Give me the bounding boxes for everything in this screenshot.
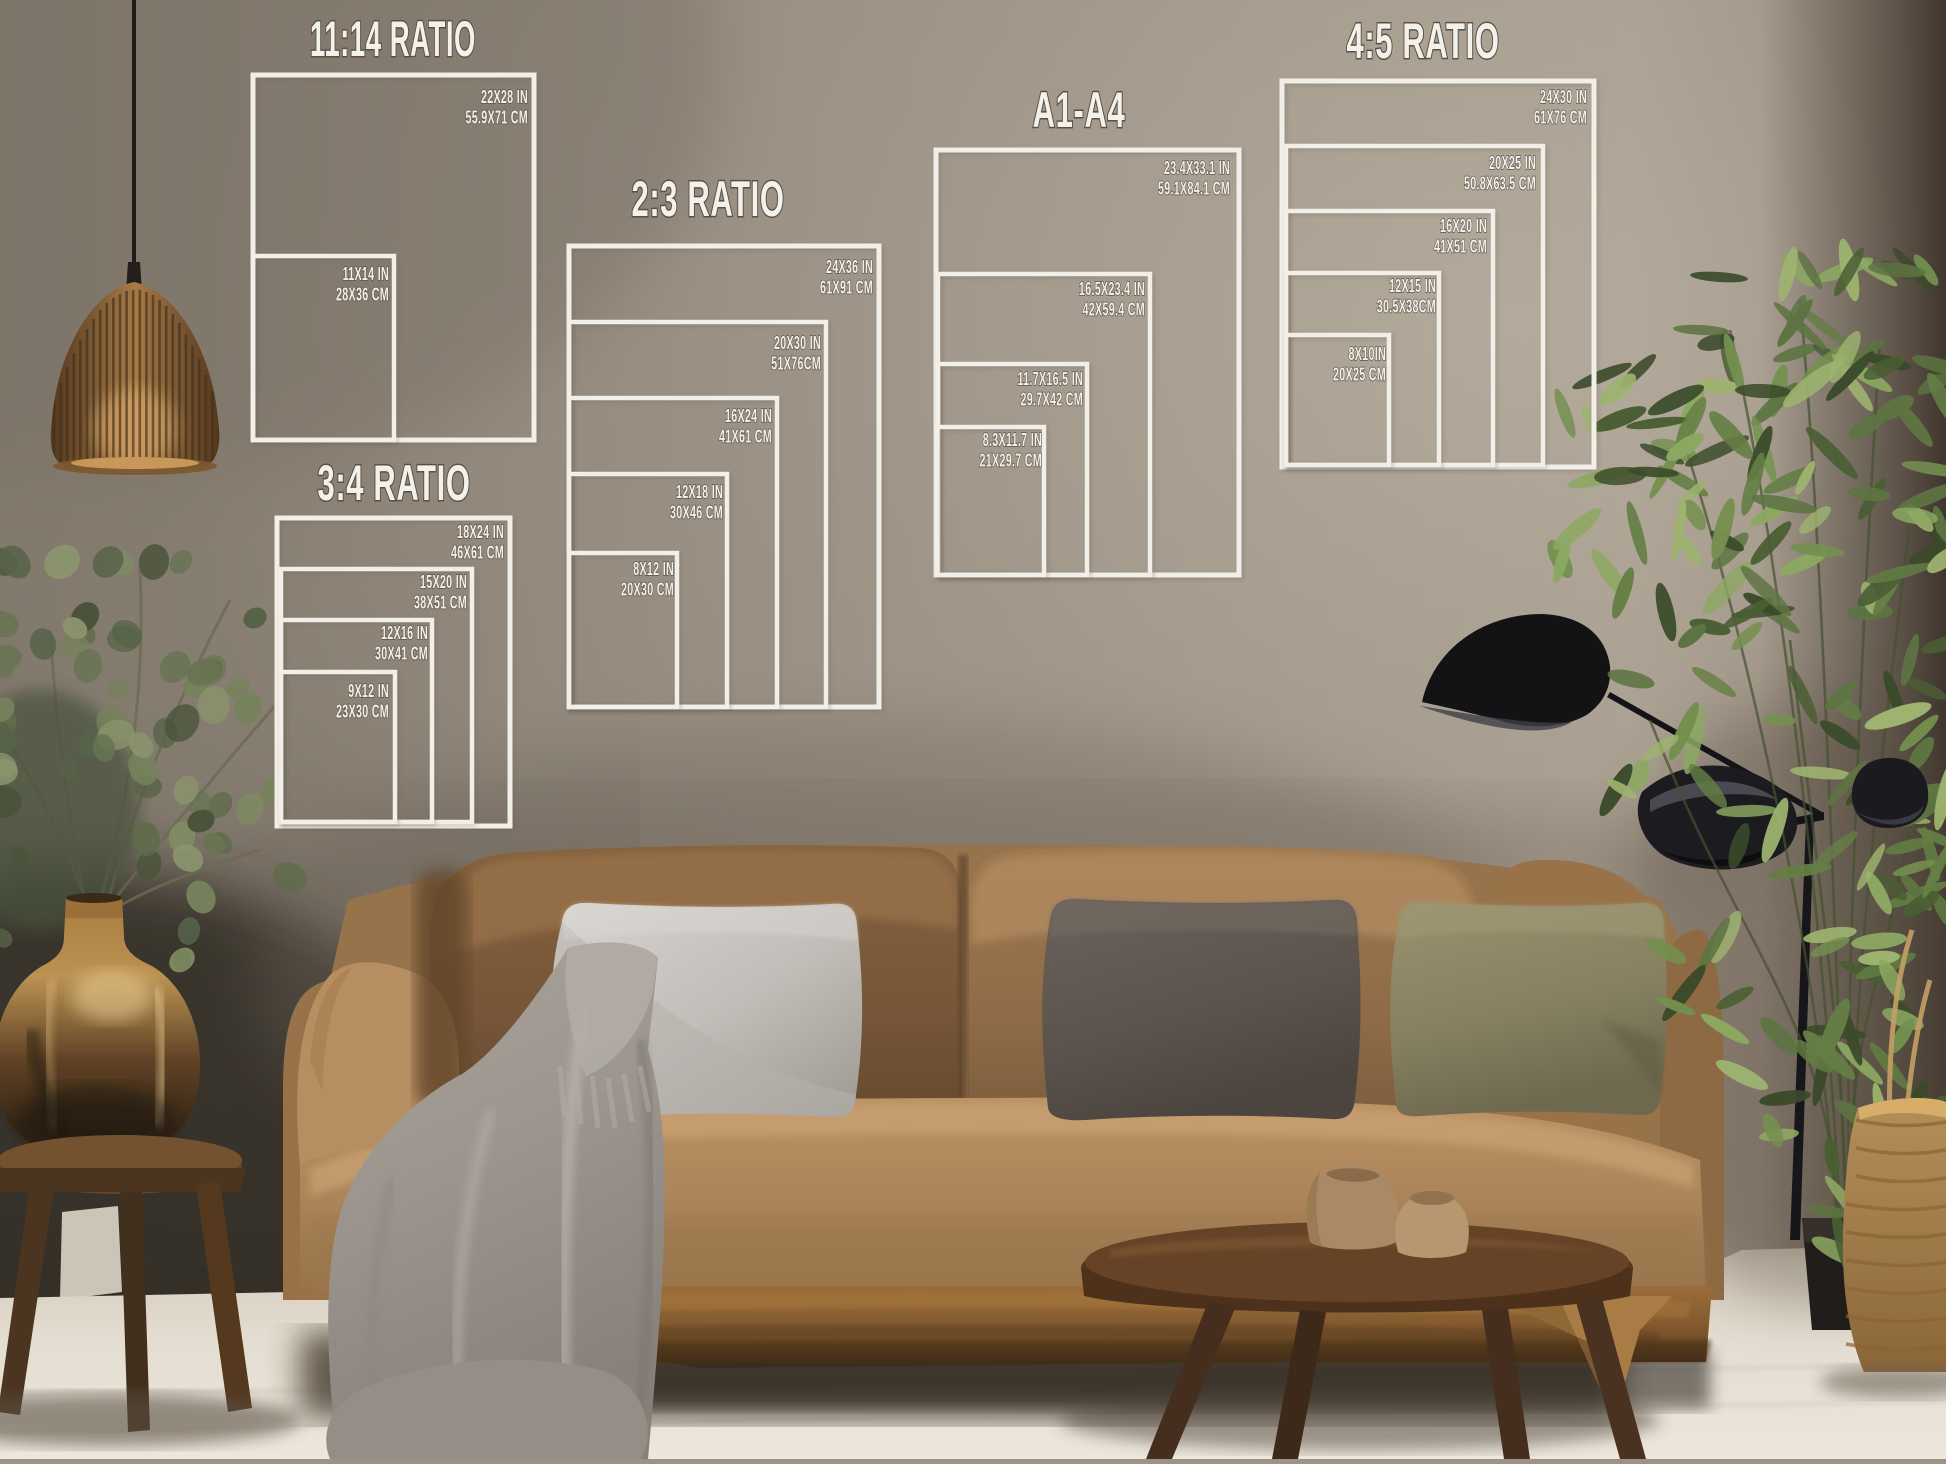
svg-text:42X59.4 CM: 42X59.4 CM xyxy=(1083,300,1145,321)
svg-text:16X20 IN: 16X20 IN xyxy=(1440,216,1487,237)
svg-text:8X10IN: 8X10IN xyxy=(1348,344,1386,365)
svg-text:23.4X33.1 IN: 23.4X33.1 IN xyxy=(1164,158,1230,179)
svg-text:A1-A4: A1-A4 xyxy=(1033,81,1126,137)
svg-text:20X25 CM: 20X25 CM xyxy=(1333,365,1386,386)
svg-text:4:5 RATIO: 4:5 RATIO xyxy=(1346,12,1499,68)
svg-text:51X76CM: 51X76CM xyxy=(771,354,821,375)
svg-text:38X51 CM: 38X51 CM xyxy=(414,593,467,614)
svg-text:16X24 IN: 16X24 IN xyxy=(725,406,772,427)
svg-text:16.5X23.4 IN: 16.5X23.4 IN xyxy=(1079,279,1145,300)
svg-text:11:14 RATIO: 11:14 RATIO xyxy=(310,10,476,67)
svg-text:30X41 CM: 30X41 CM xyxy=(375,644,428,665)
svg-text:18X24 IN: 18X24 IN xyxy=(457,522,504,543)
svg-text:21X29.7 CM: 21X29.7 CM xyxy=(980,451,1042,472)
svg-text:8.3X11.7 IN: 8.3X11.7 IN xyxy=(983,430,1042,451)
svg-text:61X91 CM: 61X91 CM xyxy=(820,278,873,299)
svg-text:3:4 RATIO: 3:4 RATIO xyxy=(317,454,470,510)
svg-text:46X61 CM: 46X61 CM xyxy=(451,543,504,564)
svg-text:55.9X71 CM: 55.9X71 CM xyxy=(466,108,528,129)
svg-text:8X12 IN: 8X12 IN xyxy=(633,559,674,580)
svg-text:28X36 CM: 28X36 CM xyxy=(336,285,389,306)
svg-text:20X30 CM: 20X30 CM xyxy=(621,580,674,601)
svg-text:41X51 CM: 41X51 CM xyxy=(1434,237,1487,258)
svg-text:29.7X42 CM: 29.7X42 CM xyxy=(1021,390,1083,411)
svg-text:9X12 IN: 9X12 IN xyxy=(348,681,389,702)
svg-text:24X30 IN: 24X30 IN xyxy=(1540,87,1587,108)
svg-text:22X28 IN: 22X28 IN xyxy=(481,87,528,108)
svg-text:30.5X38CM: 30.5X38CM xyxy=(1377,297,1436,318)
svg-text:24X36 IN: 24X36 IN xyxy=(826,257,873,278)
svg-text:30X46 CM: 30X46 CM xyxy=(670,503,723,524)
svg-text:11X14 IN: 11X14 IN xyxy=(343,264,389,285)
svg-text:15X20 IN: 15X20 IN xyxy=(420,572,467,593)
svg-text:20X30 IN: 20X30 IN xyxy=(774,333,821,354)
svg-text:12X15 IN: 12X15 IN xyxy=(1389,276,1436,297)
svg-text:23X30 CM: 23X30 CM xyxy=(336,702,389,723)
svg-text:20X25 IN: 20X25 IN xyxy=(1489,153,1536,174)
svg-text:12X18 IN: 12X18 IN xyxy=(676,482,723,503)
svg-text:11.7X16.5 IN: 11.7X16.5 IN xyxy=(1018,369,1083,390)
svg-text:12X16 IN: 12X16 IN xyxy=(381,623,428,644)
svg-text:41X61 CM: 41X61 CM xyxy=(719,427,772,448)
svg-text:50.8X63.5 CM: 50.8X63.5 CM xyxy=(1464,174,1536,195)
svg-text:59.1X84.1 CM: 59.1X84.1 CM xyxy=(1158,179,1230,200)
svg-text:2:3 RATIO: 2:3 RATIO xyxy=(631,170,784,226)
svg-text:61X76 CM: 61X76 CM xyxy=(1534,108,1587,129)
